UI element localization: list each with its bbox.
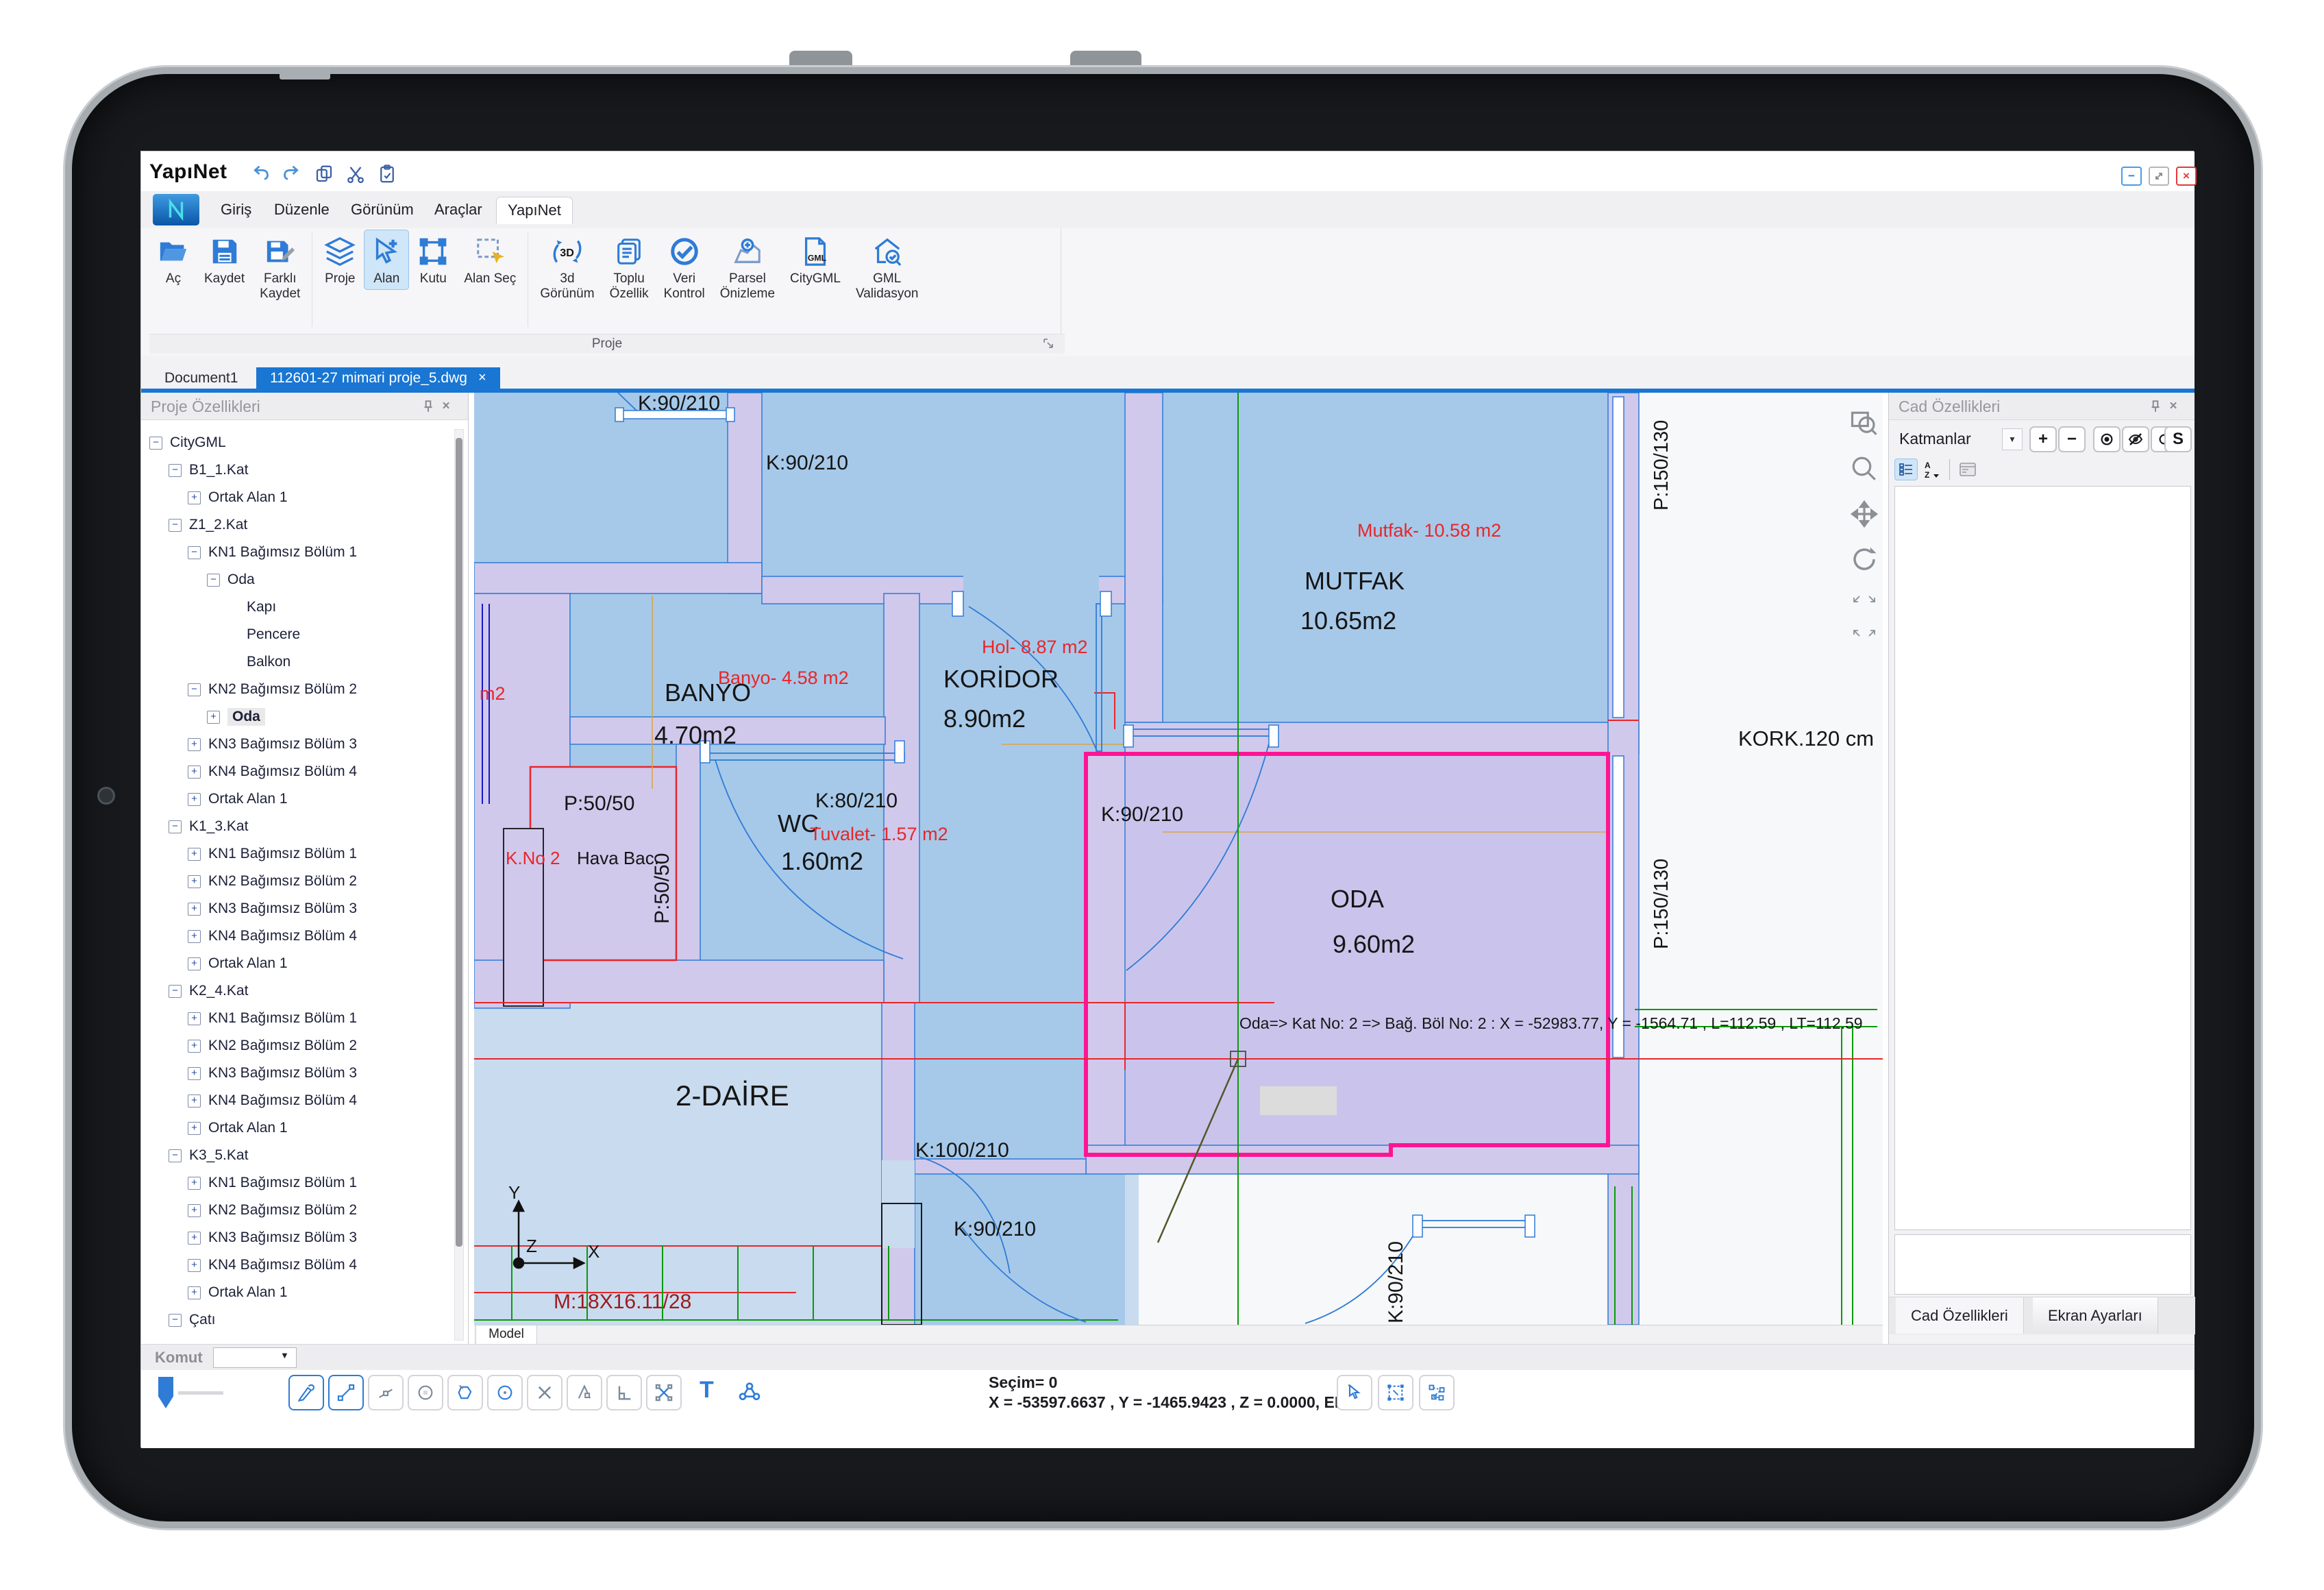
snap-perpendicular-button[interactable] <box>606 1375 642 1410</box>
citygml-button[interactable]: GML CityGML <box>783 230 848 290</box>
hover-tooltip-text: Oda=> Kat No: 2 => Bağ. Böl No: 2 : X = … <box>1239 1014 1863 1032</box>
snap-polyline-button[interactable] <box>328 1375 364 1410</box>
select-mode-button[interactable] <box>1337 1375 1372 1410</box>
tree-item[interactable]: +KN3 Bağımsız Bölüm 3 <box>141 1224 453 1251</box>
svg-text:Z: Z <box>526 1236 537 1256</box>
snap-center-button[interactable] <box>487 1375 523 1410</box>
panel-close-icon[interactable]: × <box>438 399 454 414</box>
stair-label: M:18X16.11/28 <box>554 1291 691 1313</box>
undo-icon[interactable] <box>249 164 273 184</box>
ribbon-group-label: Proje <box>149 334 1065 354</box>
save-icon <box>209 236 240 267</box>
door-opening <box>963 575 1099 605</box>
tree-toggle[interactable]: + <box>188 1177 201 1190</box>
app-logo[interactable] <box>153 194 199 225</box>
room-area: 8.90m2 <box>943 705 1026 733</box>
add-layer-button[interactable]: + <box>2029 426 2057 452</box>
room-label: KORİDOR <box>943 665 1059 693</box>
tree-toggle[interactable]: + <box>188 875 201 888</box>
snap-apparent-intersection-button[interactable] <box>646 1375 682 1410</box>
pan-icon[interactable] <box>1850 500 1879 528</box>
menu-tab-yapinet[interactable]: YapıNet <box>496 197 573 224</box>
zoom-window-icon[interactable] <box>1850 409 1879 438</box>
close-button[interactable]: × <box>2176 167 2197 186</box>
svg-text:Z: Z <box>1925 470 1929 479</box>
tab-ekran-ayarlari[interactable]: Ekran Ayarları <box>2033 1297 2158 1334</box>
room-area: 10.65m2 <box>1300 607 1396 635</box>
data-check-button[interactable]: Veri Kontrol <box>657 230 712 305</box>
tree-item[interactable]: +KN4 Bağımsız Bölüm 4 <box>141 1087 453 1114</box>
paste-icon[interactable] <box>375 164 399 184</box>
shaft-label: P:50/50 <box>651 853 673 924</box>
data-check-icon <box>669 236 700 267</box>
tree-toggle[interactable]: + <box>188 1286 201 1299</box>
area-calc-label: Tuvalet- 1.57 m2 <box>810 824 948 844</box>
layers-list[interactable] <box>1894 486 2191 1230</box>
canvas-nav-toolbar <box>1850 402 1881 659</box>
toolbar-separator <box>1949 459 1950 480</box>
tree-item[interactable]: −K3_5.Kat <box>141 1142 453 1169</box>
cursor-tooltip-box <box>1260 1086 1337 1115</box>
tree-toggle[interactable]: − <box>169 464 182 477</box>
tree-toggle[interactable]: − <box>169 1314 182 1327</box>
app-window: YapıNet − × <box>140 151 2194 1447</box>
ribbon: Aç Kaydet Farklı Kaydet Proje <box>141 228 2195 356</box>
area-calc-label: K.No 2 <box>506 848 560 868</box>
zoom-slider-track[interactable] <box>178 1391 223 1395</box>
dialog-launcher-icon[interactable] <box>1041 337 1055 350</box>
save-as-icon <box>264 236 296 267</box>
layers-toolbar: Katmanlar ▼ + − S <box>1889 424 2195 454</box>
doc-tab-document1[interactable]: Document1 <box>151 367 251 389</box>
cad-properties-panel: Cad Özellikleri × Katmanlar ▼ + − <box>1888 393 2195 1344</box>
tree-toggle[interactable]: − <box>169 985 182 998</box>
annotation-label: KORK.120 cm <box>1738 726 1874 750</box>
gml-validation-button[interactable]: GML Validasyon <box>849 230 926 305</box>
area-icon <box>371 236 402 267</box>
open-folder-icon <box>158 236 189 267</box>
page: YapıNet − × <box>0 0 2324 1590</box>
layout-tab-strip: Model <box>474 1325 1883 1344</box>
command-bar: Komut ▼ <box>141 1344 2195 1371</box>
zoom-slider-thumb[interactable] <box>158 1377 173 1408</box>
model-tab[interactable]: Model <box>475 1325 537 1344</box>
minimize-button[interactable]: − <box>2121 167 2142 186</box>
doc-tab-dwg[interactable]: 112601-27 mimari proje_5.dwg × <box>256 367 500 389</box>
tree-item[interactable]: +KN2 Bağımsız Bölüm 2 <box>141 868 453 895</box>
door-label: K:90/210 <box>766 452 848 474</box>
status-toolbar: T Seçim= 0 X = -53597.6637 , Y = -1465.9… <box>141 1370 2195 1417</box>
coordinate-readout: X = -53597.6637 , Y = -1465.9423 , Z = 0… <box>989 1393 1373 1412</box>
save-as-button[interactable]: Farklı Kaydet <box>253 230 307 305</box>
crossing-select-button[interactable] <box>1419 1375 1455 1410</box>
tree-item[interactable]: +Ortak Alan 1 <box>141 1114 453 1142</box>
tree-toggle[interactable]: + <box>188 1012 201 1025</box>
isolate-layer-button[interactable] <box>2093 426 2121 452</box>
tree-item[interactable]: +KN1 Bağımsız Bölüm 1 <box>141 1169 453 1197</box>
door-label: K:90/210 <box>954 1218 1036 1240</box>
3d-view-icon: 3D <box>552 236 583 267</box>
save-button[interactable]: Kaydet <box>197 230 251 290</box>
remove-layer-button[interactable]: − <box>2058 426 2086 452</box>
copy-icon[interactable] <box>312 164 336 184</box>
door-label: K:90/210 <box>1385 1241 1407 1323</box>
room-area: 1.60m2 <box>781 847 863 875</box>
camera-dot <box>97 787 115 805</box>
app-title: YapıNet <box>149 160 227 184</box>
tree-toggle[interactable]: + <box>188 1067 201 1080</box>
panel-bottom-tabs: Cad Özellikleri Ekran Ayarları <box>1889 1297 2195 1334</box>
title-bar: YapıNet − × <box>141 151 2195 191</box>
tree-item[interactable]: +Ortak Alan 1 <box>141 950 453 977</box>
tree-toggle[interactable]: + <box>207 711 220 724</box>
tree-item[interactable]: +KN4 Bağımsız Bölüm 4 <box>141 1251 453 1279</box>
tree-item[interactable]: −KN1 Bağımsız Bölüm 1 <box>141 539 453 566</box>
tree-item[interactable]: −K1_3.Kat <box>141 813 453 840</box>
scrollbar-thumb[interactable] <box>456 438 462 1247</box>
ribbon-separator <box>312 232 312 327</box>
tree-toggle[interactable]: + <box>188 1040 201 1053</box>
3d-view-button[interactable]: 3D 3d Görünüm <box>533 230 601 305</box>
layers-label: Katmanlar <box>1899 430 1971 448</box>
layer-list-view-icon[interactable] <box>1894 458 1918 480</box>
menu-tab-araclar[interactable]: Araçlar <box>423 197 493 223</box>
tree-toggle[interactable]: + <box>188 766 201 779</box>
room-label: MUTFAK <box>1305 567 1405 595</box>
tree-toggle[interactable]: − <box>207 574 220 587</box>
document-tab-bar: Document1 112601-27 mimari proje_5.dwg × <box>141 356 2195 393</box>
area-calc-label: Mutfak- 10.58 m2 <box>1357 520 1501 541</box>
area-calc-label: Hol- 8.87 m2 <box>982 637 1088 657</box>
room-area: 4.70m2 <box>654 721 737 749</box>
open-button[interactable]: Aç <box>151 230 196 290</box>
area-select-button[interactable]: Alan Seç <box>457 230 523 290</box>
tree-item[interactable]: +KN2 Bağımsız Bölüm 2 <box>141 1197 453 1224</box>
layers-dropdown[interactable]: ▼ <box>2002 428 2023 450</box>
project-panel-header: Proje Özellikleri × <box>141 393 468 420</box>
area-calc-label: Banyo- 4.58 m2 <box>718 668 849 688</box>
project-button[interactable]: Proje <box>317 230 362 290</box>
tree-item[interactable]: +Ortak Alan 1 <box>141 785 453 813</box>
menu-bar: Giriş Düzenle Görünüm Araçlar YapıNet <box>141 191 2195 229</box>
tree-toggle[interactable]: − <box>149 437 162 450</box>
cut-icon[interactable] <box>344 164 367 184</box>
tree-item[interactable]: −Çatı <box>141 1306 453 1334</box>
panel-close-icon[interactable]: × <box>2166 399 2181 414</box>
parcel-preview-button[interactable]: Parsel Önizleme <box>713 230 782 305</box>
tree-item[interactable]: Pencere <box>141 621 453 648</box>
tree-item[interactable]: Balkon <box>141 648 453 676</box>
snap-angle-button[interactable] <box>567 1375 602 1410</box>
ribbon-group-proje: Aç Kaydet Farklı Kaydet Proje <box>145 228 1061 354</box>
bulk-properties-icon <box>613 236 645 267</box>
tree-item[interactable]: +KN2 Bağımsız Bölüm 2 <box>141 1032 453 1060</box>
svg-text:A: A <box>1925 461 1931 470</box>
box-icon <box>417 236 449 267</box>
sim-slot <box>280 69 330 79</box>
tree-toggle[interactable]: + <box>188 793 201 806</box>
text-tool-button[interactable]: T <box>700 1377 714 1404</box>
area-calc-label: m2 <box>480 683 506 704</box>
s-button[interactable]: S <box>2164 426 2192 452</box>
snap-polygon-button[interactable] <box>447 1375 483 1410</box>
tree-toggle[interactable]: − <box>188 546 201 559</box>
project-icon <box>324 236 356 267</box>
svg-text:3D: 3D <box>560 247 574 259</box>
gml-validation-icon <box>871 236 903 267</box>
hide-layer-button[interactable] <box>2122 426 2149 452</box>
tree-scrollbar[interactable] <box>454 429 464 1341</box>
door-label: K:100/210 <box>915 1139 1009 1162</box>
snap-circle-button[interactable] <box>408 1375 443 1410</box>
tree-item-selected[interactable]: +Oda <box>141 703 453 731</box>
tree-toggle[interactable]: − <box>169 1149 182 1162</box>
area-select-icon <box>474 236 506 267</box>
selection-status: Seçim= 0 X = -53597.6637 , Y = -1465.942… <box>989 1373 1373 1412</box>
citygml-icon: GML <box>800 236 831 267</box>
menu-tab-giris[interactable]: Giriş <box>210 197 262 223</box>
cad-panel-header: Cad Özellikleri × <box>1889 393 2195 420</box>
shaft-label: Hava Bac. <box>577 848 659 868</box>
details-box <box>1894 1234 2191 1295</box>
snap-intersection-button[interactable] <box>527 1375 563 1410</box>
svg-text:Y: Y <box>508 1182 520 1203</box>
ribbon-separator <box>528 232 528 327</box>
pin-icon[interactable] <box>2148 399 2163 414</box>
tree-item[interactable]: −K2_4.Kat <box>141 977 453 1005</box>
window-label: P:150/130 <box>1651 420 1672 511</box>
tree-item[interactable]: +Ortak Alan 1 <box>141 1279 453 1306</box>
tree-toggle[interactable]: + <box>188 491 201 504</box>
zoom-previous-icon[interactable] <box>1850 624 1879 642</box>
redo-icon[interactable] <box>280 164 303 184</box>
tree-toggle[interactable]: + <box>188 903 201 916</box>
snap-midpoint-button[interactable] <box>368 1375 404 1410</box>
svg-text:X: X <box>588 1241 599 1262</box>
tab-cad-ozellikleri[interactable]: Cad Özellikleri <box>1896 1297 2024 1334</box>
bulk-properties-button[interactable]: Toplu Özellik <box>603 230 656 305</box>
pin-icon[interactable] <box>421 399 436 414</box>
tree-toggle[interactable]: + <box>188 1094 201 1108</box>
project-tree: −CityGML −B1_1.Kat +Ortak Alan 1 −Z1_2.K… <box>141 429 453 1334</box>
tab-close-icon[interactable]: × <box>478 367 486 389</box>
window-select-button[interactable] <box>1378 1375 1413 1410</box>
gizmo-icon[interactable] <box>736 1378 763 1406</box>
tree-toggle[interactable]: + <box>188 930 201 943</box>
tree-item[interactable]: +KN1 Bağımsız Bölüm 1 <box>141 840 453 868</box>
menu-tab-duzenle[interactable]: Düzenle <box>263 197 341 223</box>
floor-plan: Y X Z BANYO 4.70m2 MUTFAK 10.65m2 KORİDO… <box>474 393 1883 1325</box>
tree-toggle[interactable]: + <box>188 1259 201 1272</box>
room-label: 2-DAİRE <box>676 1079 789 1112</box>
tree-item[interactable]: −Oda <box>141 566 453 594</box>
tree-item[interactable]: +KN3 Bağımsız Bölüm 3 <box>141 895 453 922</box>
layer-view-toolbar: A Z <box>1889 457 2195 483</box>
shaft-label: P:50/50 <box>564 792 634 815</box>
tree-item[interactable]: +KN3 Bağımsız Bölüm 3 <box>141 1060 453 1087</box>
project-panel: Proje Özellikleri × −CityGML −B1_1.Kat +… <box>141 393 469 1344</box>
tree-toggle[interactable]: − <box>169 820 182 833</box>
tree-item[interactable]: +KN4 Bağımsız Bölüm 4 <box>141 758 453 785</box>
box-button[interactable]: Kutu <box>410 230 456 290</box>
tree-item[interactable]: +Ortak Alan 1 <box>141 484 453 511</box>
parcel-preview-icon <box>732 236 763 267</box>
tree-item[interactable]: −KN2 Bağımsız Bölüm 2 <box>141 676 453 703</box>
tree-item[interactable]: Kapı <box>141 594 453 621</box>
tree-toggle[interactable]: + <box>188 957 201 970</box>
tree-toggle[interactable]: + <box>188 738 201 751</box>
tree-toggle[interactable]: − <box>188 683 201 696</box>
room-label: ODA <box>1331 885 1384 913</box>
tree-item[interactable]: +KN1 Bağımsız Bölüm 1 <box>141 1005 453 1032</box>
window-label: P:150/130 <box>1651 859 1672 949</box>
snap-draw-button[interactable] <box>288 1375 324 1410</box>
command-label: Komut <box>155 1349 203 1367</box>
zoom-icon[interactable] <box>1850 454 1879 483</box>
sort-az-icon[interactable]: A Z <box>1920 458 1944 480</box>
combo-dropdown-icon[interactable]: ▼ <box>280 1350 289 1360</box>
rotate-icon[interactable] <box>1850 545 1879 574</box>
door-label: K:90/210 <box>1101 803 1183 826</box>
tree-item[interactable]: −CityGML <box>141 429 453 456</box>
tree-item[interactable]: −Z1_2.Kat <box>141 511 453 539</box>
door-label: K:90/210 <box>638 393 720 415</box>
tree-item[interactable]: +KN4 Bağımsız Bölüm 4 <box>141 922 453 950</box>
menu-tab-gorunum[interactable]: Görünüm <box>340 197 425 223</box>
tree-item[interactable]: +KN3 Bağımsız Bölüm 3 <box>141 731 453 758</box>
area-button[interactable]: Alan <box>364 230 409 290</box>
room-area: 9.60m2 <box>1333 930 1415 958</box>
tree-toggle[interactable]: + <box>188 1232 201 1245</box>
status-filler <box>141 1417 2195 1448</box>
tree-item[interactable]: −B1_1.Kat <box>141 456 453 484</box>
svg-text:GML: GML <box>808 253 827 262</box>
layer-properties-icon[interactable] <box>1956 458 1979 480</box>
cad-canvas[interactable]: Y X Z BANYO 4.70m2 MUTFAK 10.65m2 KORİDO… <box>474 393 1883 1344</box>
door-label: K:80/210 <box>815 790 898 812</box>
tree-toggle[interactable]: + <box>188 1122 201 1135</box>
maximize-button[interactable] <box>2149 167 2169 186</box>
tree-toggle[interactable]: + <box>188 848 201 861</box>
tree-toggle[interactable]: − <box>169 519 182 532</box>
tree-toggle[interactable]: + <box>188 1204 201 1217</box>
zoom-extents-icon[interactable] <box>1850 590 1879 608</box>
